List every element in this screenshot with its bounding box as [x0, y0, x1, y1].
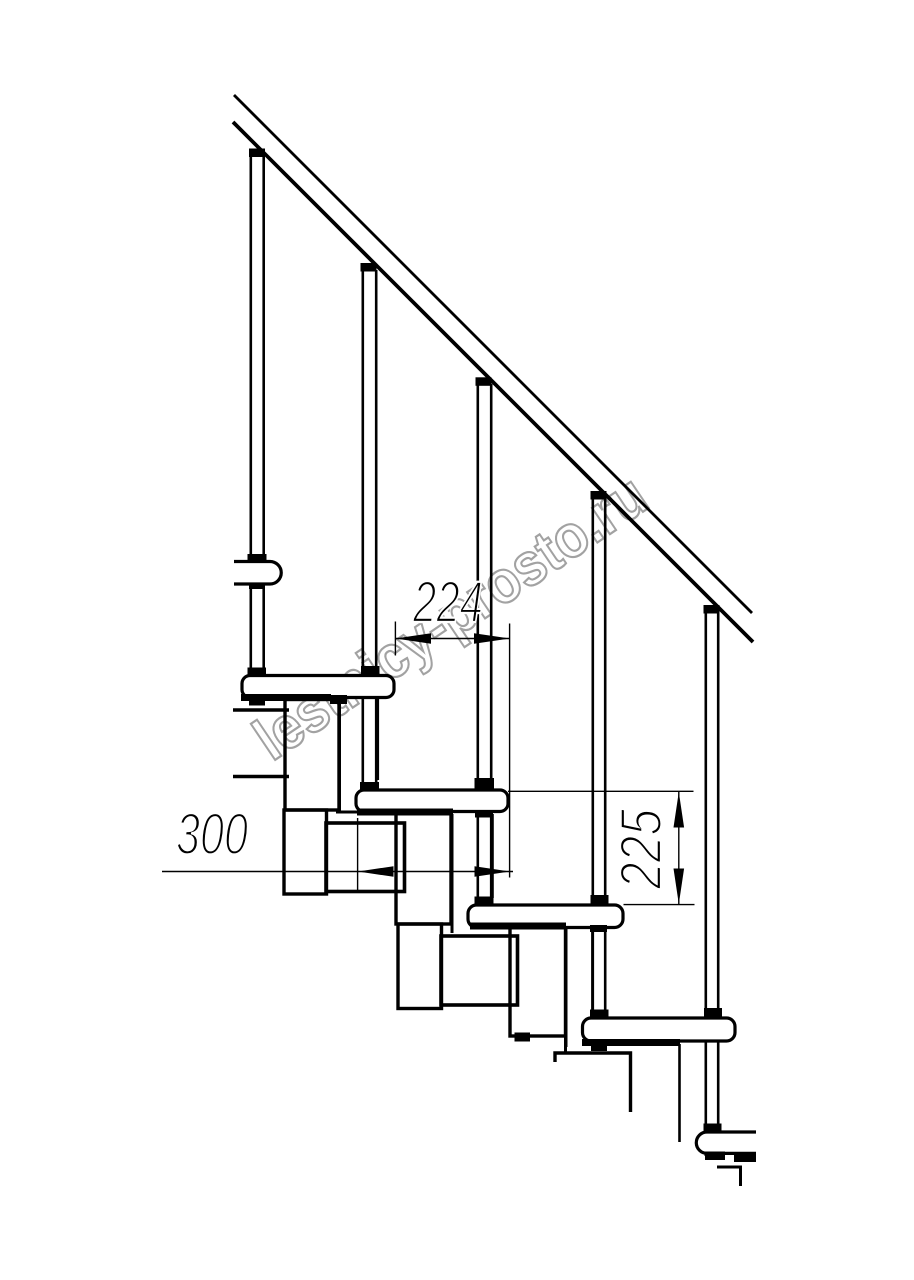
svg-text:224: 224 [412, 570, 483, 635]
svg-text:300: 300 [176, 802, 248, 867]
svg-text:225: 225 [609, 808, 674, 889]
